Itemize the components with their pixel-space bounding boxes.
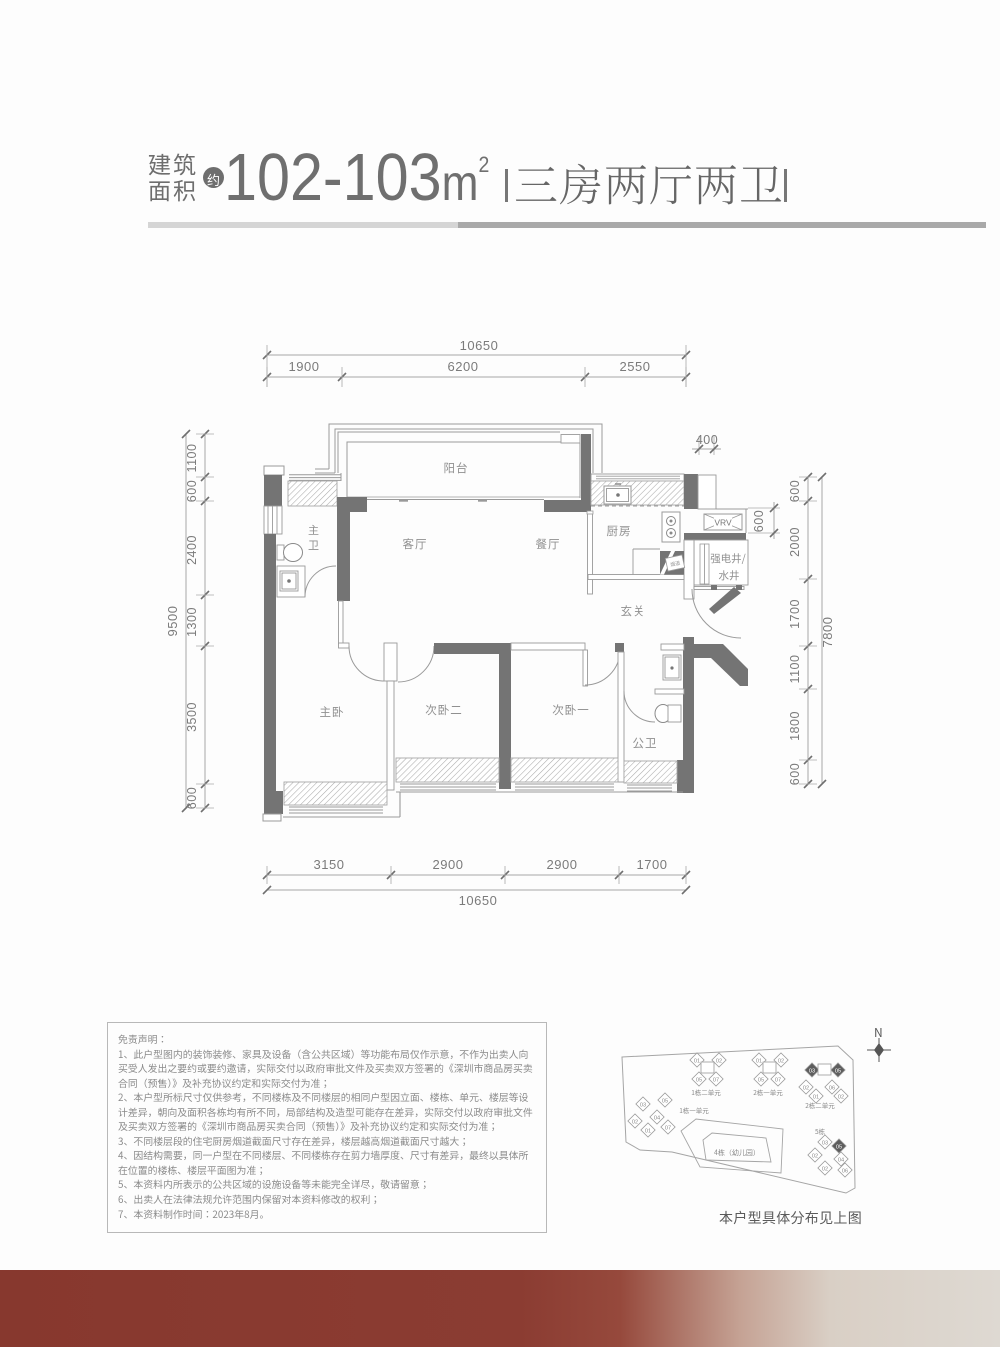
svg-text:2栋一单元: 2栋一单元 — [753, 1087, 783, 1097]
svg-text:01: 01 — [756, 1058, 762, 1064]
svg-text:5栋: 5栋 — [815, 1126, 826, 1136]
svg-text:9500: 9500 — [165, 606, 180, 637]
svg-text:次卧二: 次卧二 — [425, 702, 463, 718]
svg-text:600: 600 — [752, 510, 766, 532]
svg-text:600: 600 — [788, 763, 802, 785]
svg-text:02: 02 — [803, 1085, 809, 1091]
svg-text:次卧一: 次卧一 — [552, 702, 590, 718]
svg-text:客厅: 客厅 — [403, 536, 428, 552]
svg-text:1700: 1700 — [788, 599, 802, 629]
svg-text:公卫: 公卫 — [633, 735, 658, 751]
svg-text:05: 05 — [662, 1098, 668, 1104]
svg-text:1700: 1700 — [637, 857, 668, 872]
svg-text:1100: 1100 — [788, 655, 802, 684]
svg-text:04: 04 — [654, 1115, 660, 1121]
svg-text:06: 06 — [842, 1168, 848, 1174]
svg-text:03: 03 — [809, 1068, 815, 1074]
svg-text:600: 600 — [788, 480, 802, 502]
svg-text:2000: 2000 — [788, 527, 802, 557]
svg-text:1800: 1800 — [788, 711, 802, 741]
svg-text:01: 01 — [694, 1058, 700, 1064]
svg-text:阳台: 阳台 — [444, 460, 469, 476]
svg-text:07: 07 — [713, 1077, 719, 1083]
svg-text:02: 02 — [632, 1119, 638, 1125]
svg-text:2900: 2900 — [547, 857, 578, 872]
svg-text:1300: 1300 — [185, 607, 199, 637]
svg-text:05: 05 — [758, 1077, 764, 1083]
svg-text:水井: 水井 — [719, 568, 740, 583]
svg-text:02: 02 — [812, 1153, 818, 1159]
svg-text:07: 07 — [665, 1125, 671, 1131]
svg-text:1栋一单元: 1栋一单元 — [679, 1105, 709, 1115]
svg-text:600: 600 — [185, 787, 199, 809]
svg-text:02: 02 — [822, 1166, 828, 1172]
svg-text:1100: 1100 — [185, 444, 199, 473]
svg-text:06: 06 — [829, 1085, 835, 1091]
svg-text:04: 04 — [838, 1157, 844, 1163]
svg-text:400: 400 — [696, 433, 718, 447]
svg-text:1栋二单元: 1栋二单元 — [691, 1087, 721, 1097]
svg-text:3500: 3500 — [185, 702, 199, 732]
svg-text:10650: 10650 — [460, 338, 499, 353]
svg-text:卫: 卫 — [308, 537, 320, 553]
svg-text:6200: 6200 — [448, 359, 479, 374]
svg-text:2900: 2900 — [433, 857, 464, 872]
svg-text:N: N — [874, 1024, 883, 1041]
svg-text:2栋二单元: 2栋二单元 — [805, 1100, 835, 1110]
svg-text:10650: 10650 — [459, 893, 498, 908]
svg-text:02: 02 — [838, 1094, 844, 1100]
svg-text:01: 01 — [645, 1128, 651, 1134]
svg-text:03: 03 — [640, 1102, 646, 1108]
svg-text:1900: 1900 — [289, 359, 320, 374]
svg-text:VRV: VRV — [714, 518, 732, 528]
svg-text:2550: 2550 — [620, 359, 651, 374]
svg-text:4栋（幼儿园）: 4栋（幼儿园） — [714, 1148, 760, 1158]
svg-text:3150: 3150 — [314, 857, 345, 872]
svg-text:02: 02 — [778, 1058, 784, 1064]
svg-text:05: 05 — [836, 1144, 842, 1150]
svg-text:主卧: 主卧 — [320, 704, 345, 720]
svg-text:05: 05 — [696, 1077, 702, 1083]
svg-text:600: 600 — [185, 480, 199, 502]
svg-text:02: 02 — [716, 1058, 722, 1064]
svg-text:2400: 2400 — [185, 535, 199, 565]
svg-text:餐厅: 餐厅 — [536, 536, 561, 552]
svg-text:厨房: 厨房 — [607, 523, 632, 539]
svg-text:03: 03 — [822, 1140, 828, 1146]
svg-text:主: 主 — [308, 522, 320, 538]
svg-text:强电井/: 强电井/ — [710, 551, 746, 566]
svg-text:05: 05 — [835, 1068, 841, 1074]
svg-text:7800: 7800 — [820, 617, 835, 648]
svg-text:07: 07 — [775, 1077, 781, 1083]
svg-text:玄关: 玄关 — [621, 603, 646, 619]
